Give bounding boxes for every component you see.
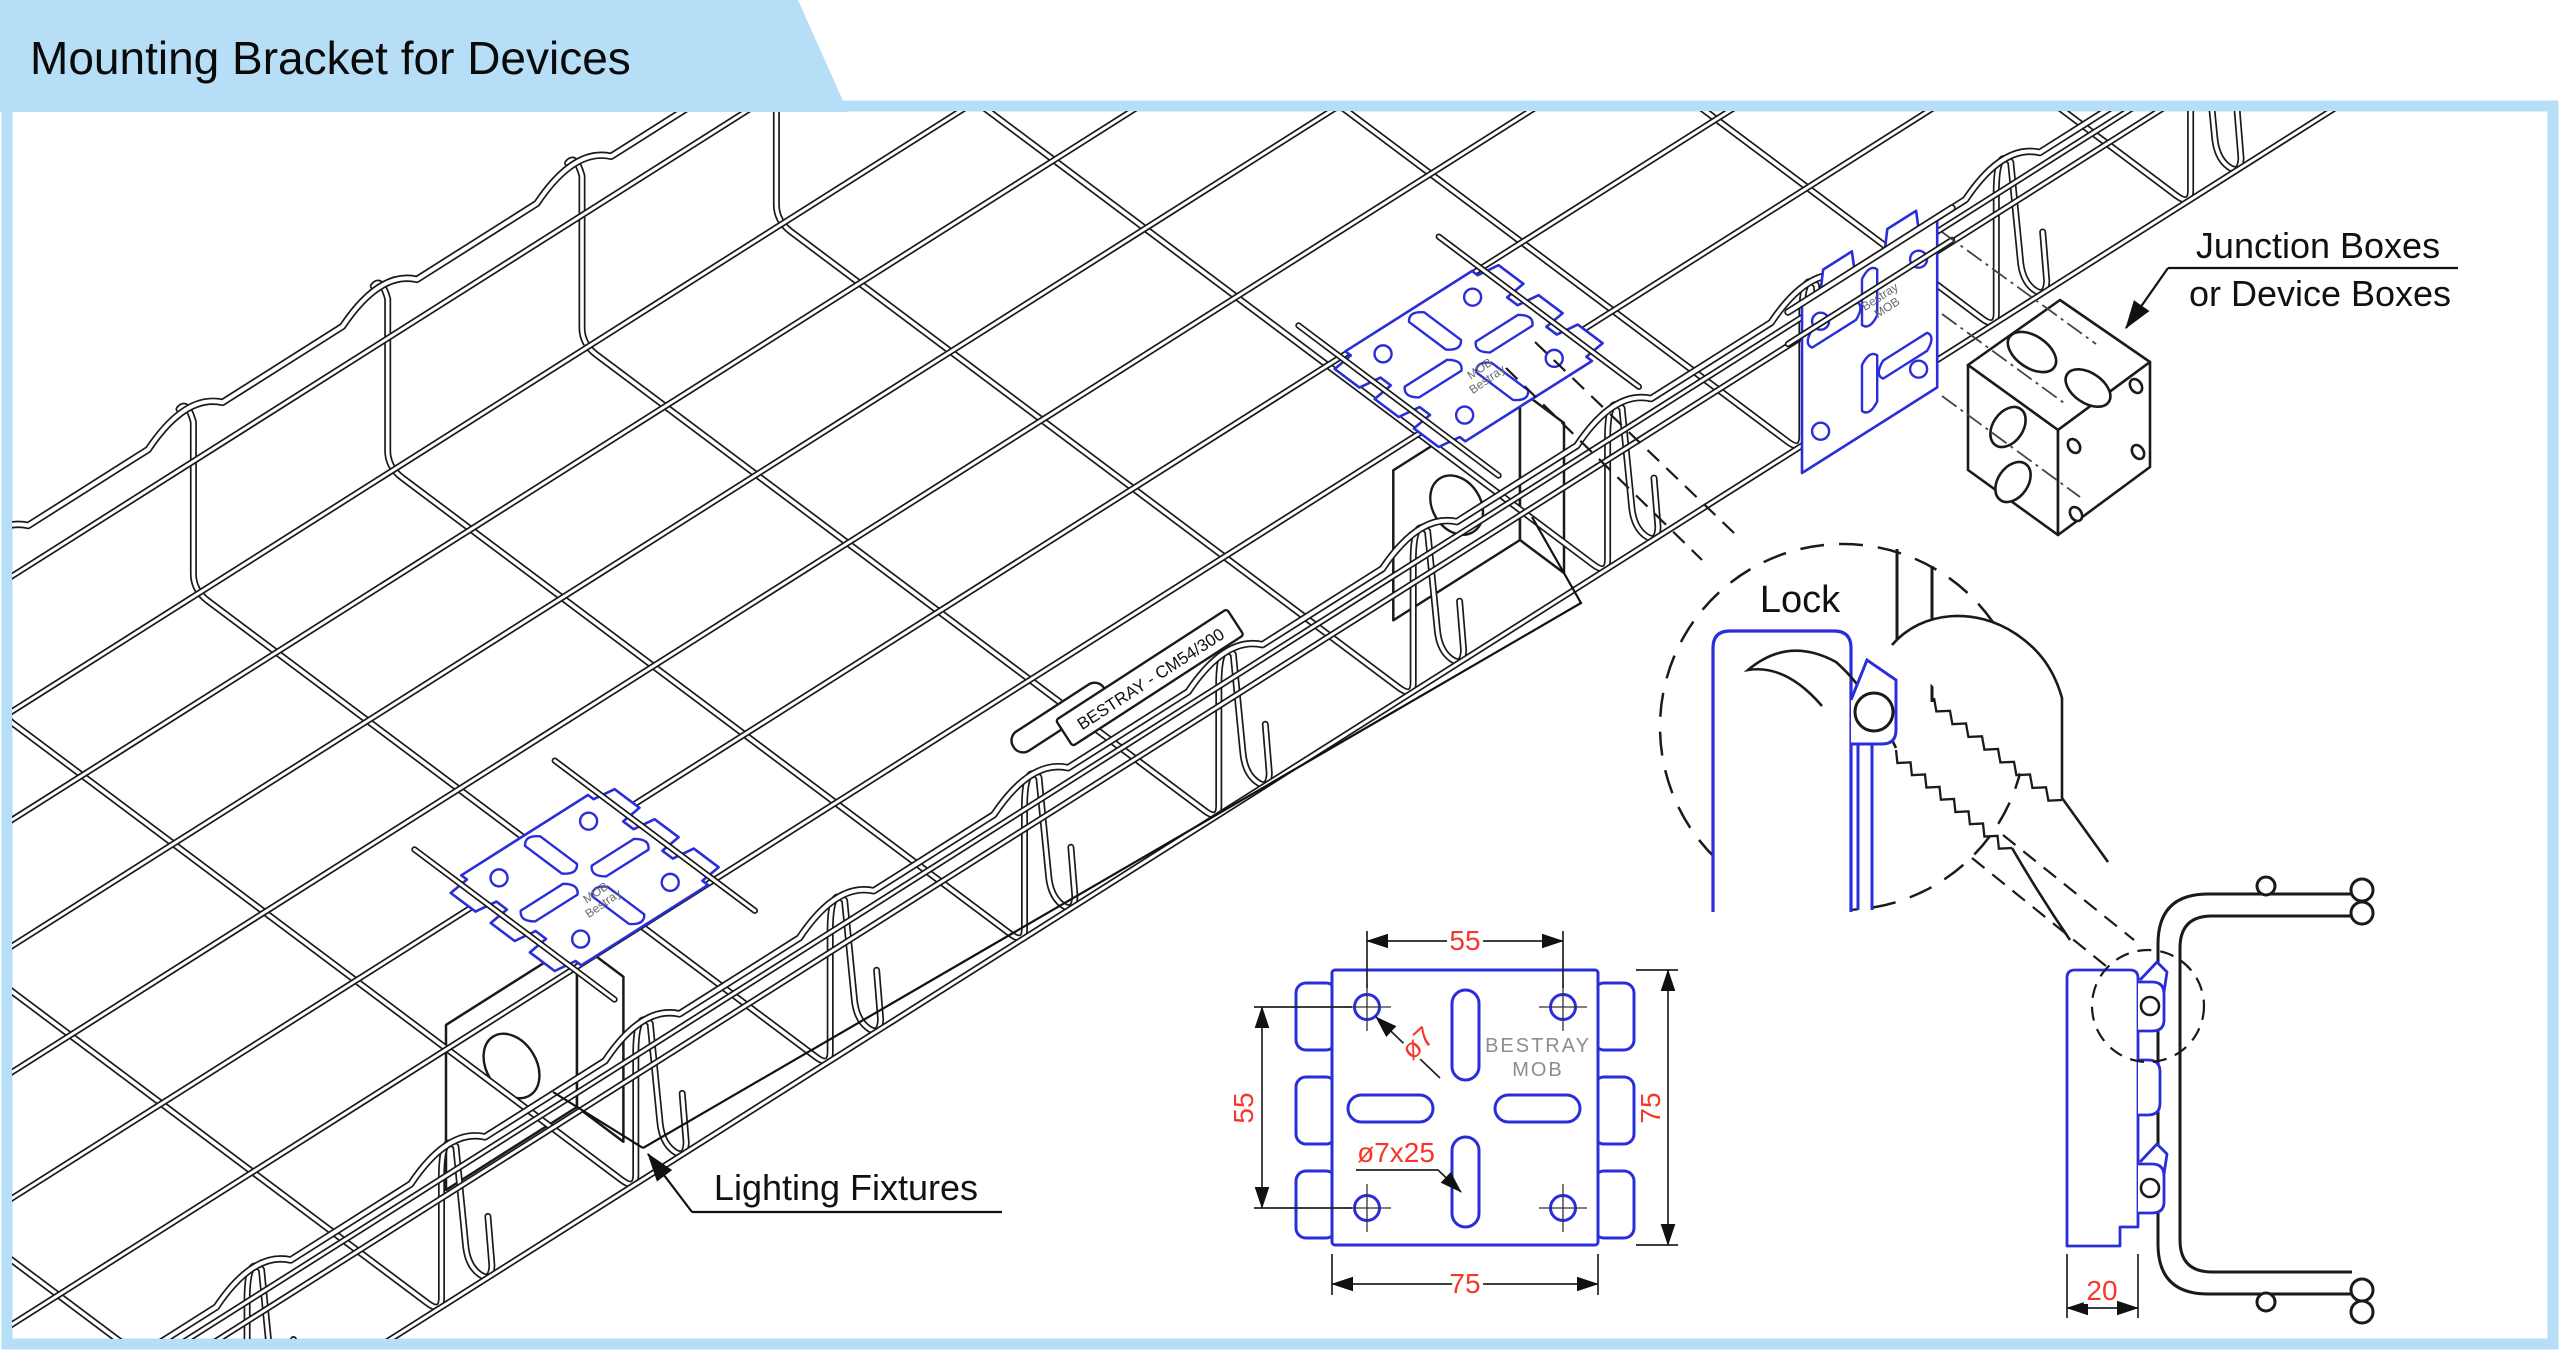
lighting-label: Lighting Fixtures (714, 1167, 978, 1208)
drawing-page: BESTRAY - CM54/300 MOB Bestray MOB Bestr… (0, 0, 2560, 1354)
dim-hole-spacing-left: 55 (1228, 1092, 1259, 1123)
dim-plate-height: 75 (1635, 1092, 1666, 1123)
dim-bracket-depth: 20 (2086, 1275, 2117, 1306)
dim-slot-size: ø7x25 (1357, 1137, 1435, 1168)
lock-label: Lock (1760, 579, 1841, 621)
wire-section-icon (2141, 1179, 2159, 1197)
front-brand-l1: BESTRAY (1485, 1035, 1591, 1057)
dim-plate-width: 75 (1449, 1268, 1480, 1299)
dim-hole-spacing-top: 55 (1449, 925, 1480, 956)
title-banner: Mounting Bracket for Devices (0, 0, 848, 112)
page-title: Mounting Bracket for Devices (30, 32, 631, 84)
technical-drawing: BESTRAY - CM54/300 MOB Bestray MOB Bestr… (0, 0, 2560, 1354)
front-brand-l2: MOB (1512, 1059, 1564, 1081)
junction-label-line1: Junction Boxes (2196, 225, 2440, 266)
junction-label-line2: or Device Boxes (2189, 273, 2451, 314)
wire-section-icon (1855, 693, 1893, 731)
wire-section-icon (2141, 997, 2159, 1015)
